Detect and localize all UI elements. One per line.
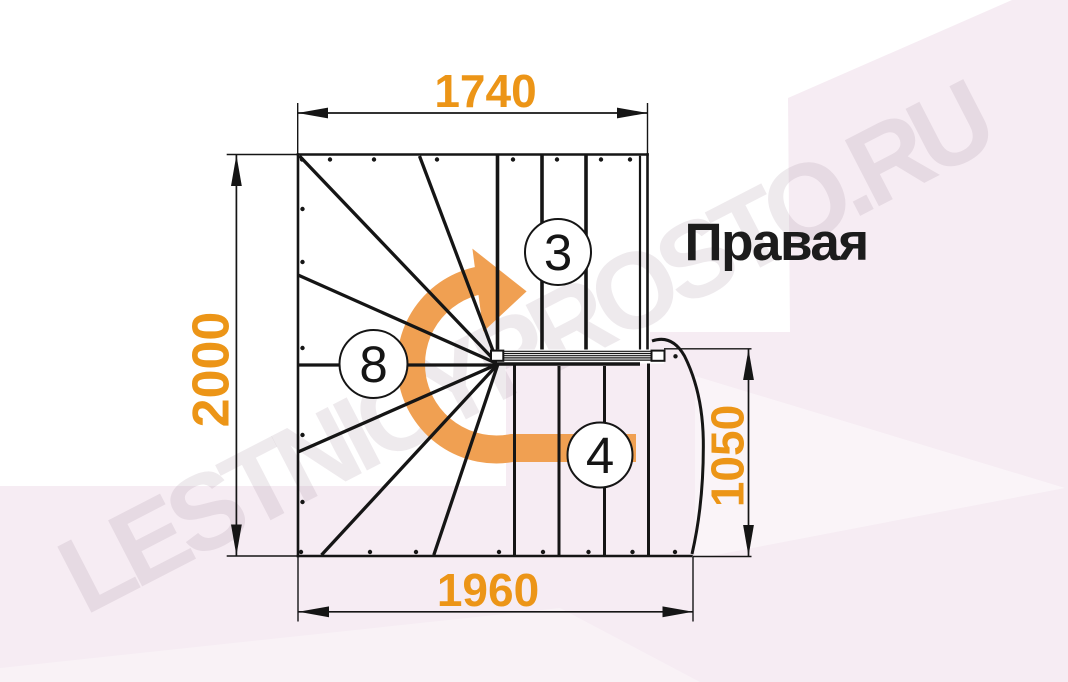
svg-text:3: 3 <box>544 224 572 281</box>
svg-text:1960: 1960 <box>437 564 539 616</box>
svg-text:4: 4 <box>586 427 614 484</box>
svg-text:1740: 1740 <box>434 65 536 117</box>
svg-text:2000: 2000 <box>183 312 241 428</box>
svg-text:1050: 1050 <box>702 405 754 507</box>
svg-text:Правая: Правая <box>685 213 868 272</box>
svg-text:8: 8 <box>359 336 387 393</box>
